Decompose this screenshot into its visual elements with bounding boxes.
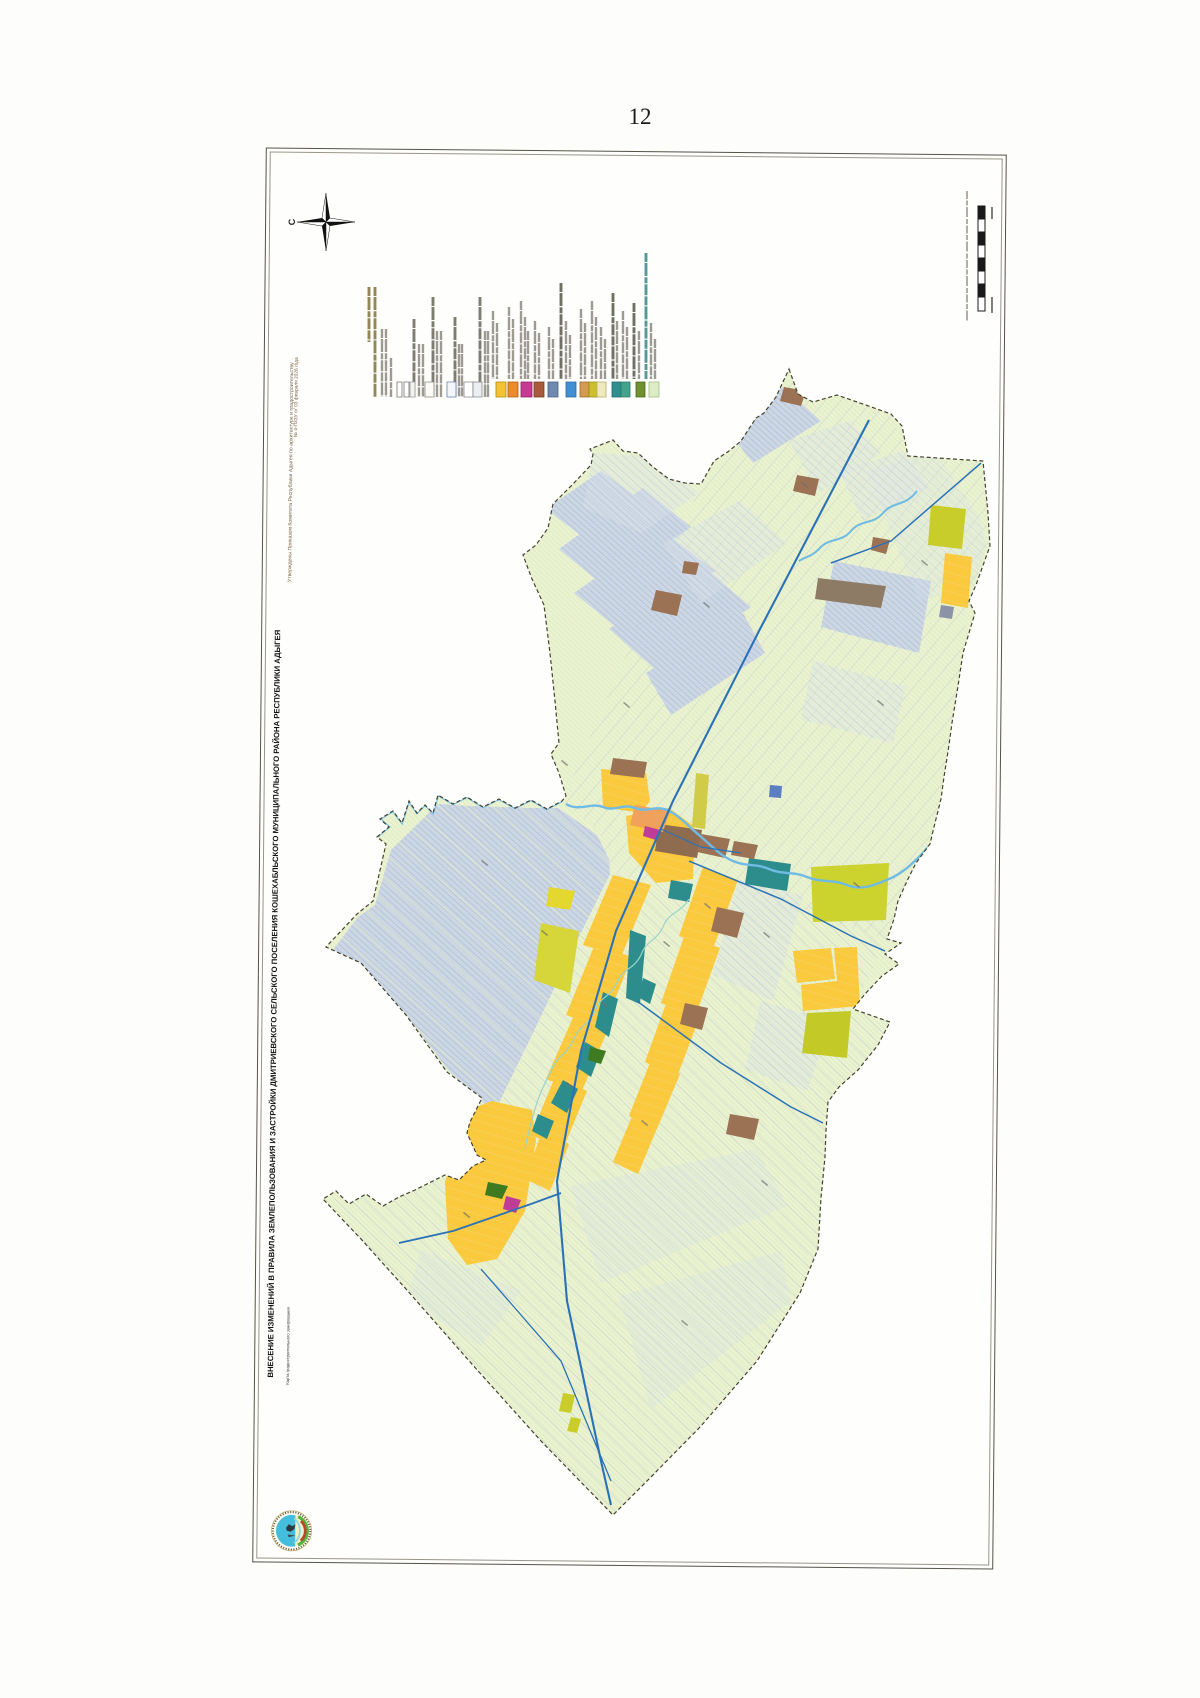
- svg-text:С: С: [287, 218, 297, 225]
